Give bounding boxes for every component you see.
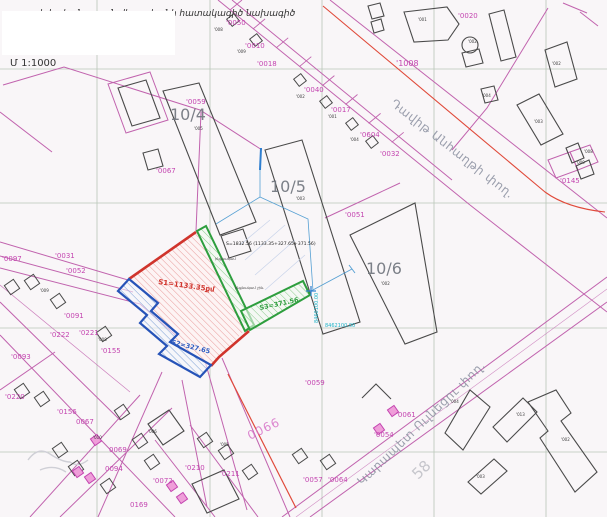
small-building [4,279,19,294]
parcel-divider [253,19,265,29]
map-label: '0097 [2,255,22,263]
map-label: '0091 [64,312,84,320]
small-building [294,74,307,87]
map-label: '009 [576,160,585,165]
map-label: ինքնակամ [215,257,236,261]
scale-label: Մ 1:1000 [10,58,56,69]
map-label: '0145 [560,177,580,185]
map-label: '004 [482,93,491,98]
map-label: '009 [237,49,246,54]
map-label: '0220 [5,393,25,401]
map-label: '0067 [156,167,176,175]
block-number: 10/6 [366,259,402,278]
block-number: 10/4 [170,105,206,124]
map-label: '0211 [220,470,240,478]
parcel-divider [276,38,288,48]
map-label: '0604 [360,131,380,139]
faint-hatch [240,220,305,290]
map-label: '0020 [458,12,478,20]
map-label: '005 [220,442,229,447]
cadastral-map-canvas: սեփականության վկայականի հատակագիծ նախագի… [0,0,607,517]
map-label: 0169 [130,501,148,509]
map-label: '0093 [11,353,31,361]
small-building [176,492,187,503]
map-label: '0010 [245,42,265,50]
small-building [144,454,159,469]
map-label: '0032 [380,150,400,158]
map-label: '0222 [50,331,70,339]
map-label: '002 [381,281,390,286]
map-label: '010 [93,435,102,440]
map-label: '009 [40,288,49,293]
map-label: '0040 [304,86,324,94]
map-label: 0067 [76,418,94,426]
map-label: '0156 [57,408,77,416]
map-label: '013 [516,412,525,417]
map-label: '003 [296,196,305,201]
map-label: '0064 [328,476,348,484]
map-label: '0210 [185,464,205,472]
grid-coordinate: 8462100.00 [325,323,355,329]
map-label: '0054 [374,431,394,439]
parcel-divider [322,76,334,86]
dimension-layer [216,148,355,296]
map-label: '001 [328,114,337,119]
map-label: '0051 [345,211,365,219]
map-label: '0052 [66,267,86,275]
small-building [84,472,95,483]
small-building [34,391,49,406]
map-label: '0221 [79,329,99,337]
map-label: 0069 [109,446,127,454]
small-building [320,454,335,469]
map-label: '003 [476,474,485,479]
map-label: '0155 [101,347,121,355]
small-building [50,293,65,308]
watermark-number: 58 [408,457,434,483]
labels-over-box: Մ 1:1000 [10,58,56,69]
map-label: '002 [468,39,477,44]
map-label: '0072 [153,477,173,485]
small-building [132,433,147,448]
map-label: '008 [214,27,223,32]
parcel-divider [369,113,381,123]
grid-coordinate: 8460100.00 [314,293,320,323]
map-label: '008 [584,149,593,154]
map-label: '0017 [331,106,351,114]
map-label: '002 [552,61,561,66]
small-building [292,448,307,463]
map-label: '1008 [396,59,419,68]
redaction-box [2,11,175,55]
small-building [346,118,359,131]
map-label: '0018 [257,60,277,68]
small-building [100,478,115,493]
map-label: '0059 [305,379,325,387]
map-label: '0057 [303,476,323,484]
map-label: '001 [418,17,427,22]
map-label: '002 [561,437,570,442]
map-label: 0094 [105,465,123,473]
map-label: '0031 [55,252,75,260]
street-name: Դավիթ Անհաղթի փող. [388,96,517,201]
map-label: '0050 [226,19,246,27]
area-summary: S=1832.56 (1133.35+327.65+371.56) [226,241,316,247]
cadastral-map-svg: սեփականության վկայականի հատակագիծ նախագի… [0,0,607,517]
map-label: '005 [194,126,203,131]
map-label: ինքնակամ շին. [235,286,264,290]
parcel-divider [299,57,311,67]
map-label: '002 [296,94,305,99]
small-building [242,464,257,479]
map-label: '003 [534,119,543,124]
map-label: '0059 [186,98,206,106]
small-building [52,442,67,457]
parcel-divider [346,95,358,105]
map-label: '006 [148,429,157,434]
parcel-divider [392,132,404,142]
block-number: 10/5 [270,177,306,196]
map-label: '0061 [396,411,416,419]
map-label: '004 [350,137,359,142]
map-label: '008 [98,337,107,342]
